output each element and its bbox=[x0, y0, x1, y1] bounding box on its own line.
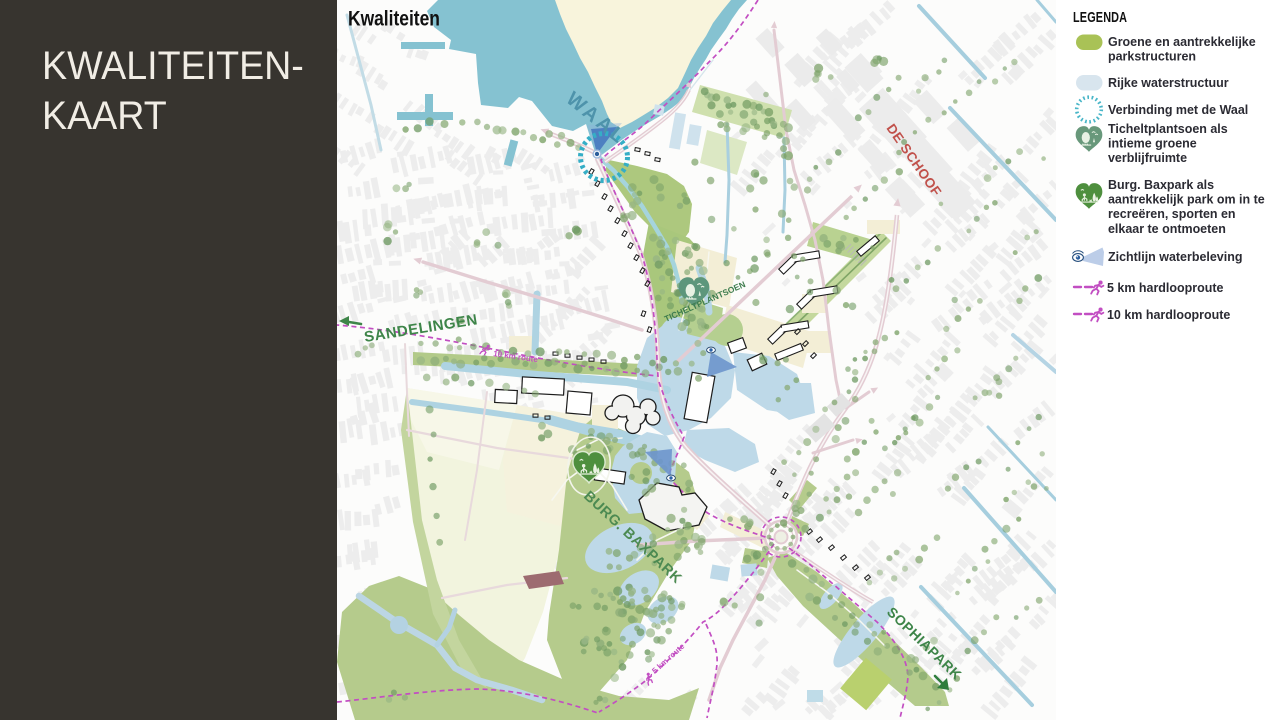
svg-text:parkstructuren: parkstructuren bbox=[1108, 48, 1196, 63]
svg-text:elkaar te ontmoeten: elkaar te ontmoeten bbox=[1108, 221, 1226, 236]
svg-text:Zichtlijn waterbeleving: Zichtlijn waterbeleving bbox=[1108, 249, 1242, 264]
svg-text:10 km hardlooproute: 10 km hardlooproute bbox=[1107, 307, 1230, 322]
svg-text:verblijfruimte: verblijfruimte bbox=[1108, 150, 1187, 165]
svg-text:Verbinding met de Waal: Verbinding met de Waal bbox=[1108, 102, 1248, 117]
svg-text:Rijke waterstructuur: Rijke waterstructuur bbox=[1108, 75, 1229, 90]
svg-text:recreëren, sporten en: recreëren, sporten en bbox=[1108, 206, 1236, 221]
svg-text:aantrekkelijk park om in te: aantrekkelijk park om in te bbox=[1108, 191, 1265, 206]
svg-text:LEGENDA: LEGENDA bbox=[1073, 8, 1127, 25]
svg-text:Kwaliteiten: Kwaliteiten bbox=[348, 8, 440, 31]
svg-text:Groene en aantrekkelijke: Groene en aantrekkelijke bbox=[1108, 34, 1256, 49]
svg-text:5 km hardlooproute: 5 km hardlooproute bbox=[1107, 280, 1223, 295]
svg-text:intieme groene: intieme groene bbox=[1108, 135, 1197, 150]
svg-text:Ticheltplantsoen als: Ticheltplantsoen als bbox=[1108, 121, 1228, 136]
svg-text:Burg. Baxpark als: Burg. Baxpark als bbox=[1108, 177, 1214, 192]
